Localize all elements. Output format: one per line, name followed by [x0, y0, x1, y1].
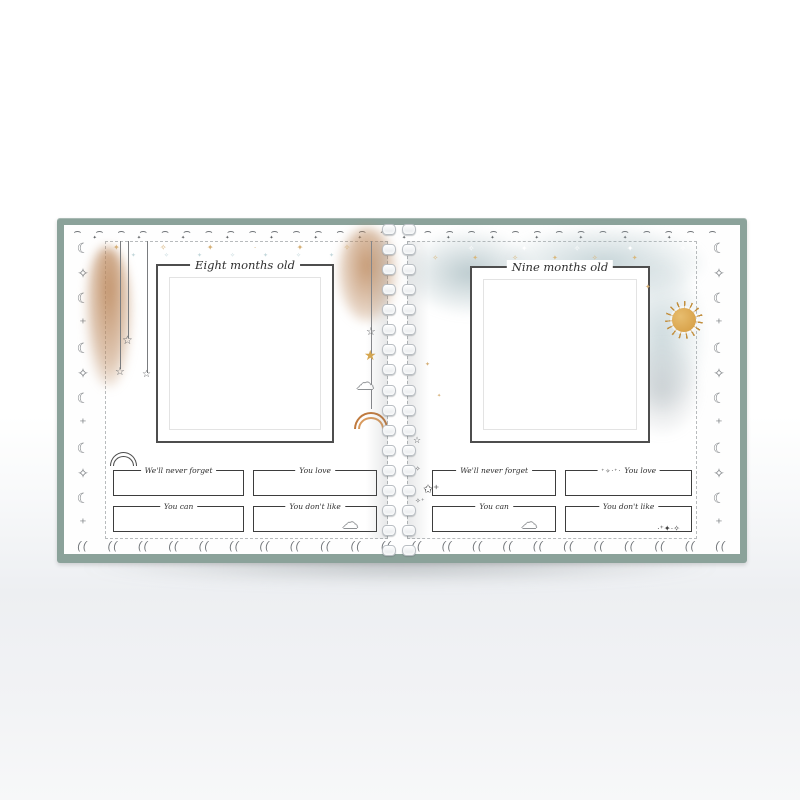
field-box-well-never-forget: We'll never forget — [113, 470, 244, 496]
field-label: You can — [475, 502, 513, 511]
hanging-string-icon — [120, 241, 121, 369]
photo-frame: Nine months old — [470, 266, 650, 443]
spiral-coil — [382, 284, 416, 295]
field-label: You don't like — [285, 502, 344, 511]
rainbow-doodle-icon — [110, 452, 137, 466]
spiral-coil — [382, 364, 416, 375]
field-box-you-dont-like: You don't like — [253, 506, 377, 532]
spiral-coil — [382, 485, 416, 496]
field-label: You don't like — [599, 502, 658, 511]
product-photo: ⌢⌢⌢⌢⌢⌢⌢⌢⌢⌢⌢⌢⌢⌢⌢⌢⌢⌢⌢⌢⌢⌢⌢⌢⌢⌢⌢⌢⌢⌢ ✦✦✦✦✦✦✦✦✦… — [0, 0, 800, 800]
hanging-string-icon — [147, 241, 148, 373]
field-label: ⁺✧·⁺·You love — [597, 466, 660, 476]
gold-star-icon: ✦ — [437, 393, 441, 399]
memory-fields: We'll never forget You love You can You … — [113, 470, 377, 532]
memory-fields: We'll never forget ⁺✧·⁺·You love You can… — [432, 470, 692, 532]
photo-placeholder — [169, 277, 321, 430]
field-box-you-love: ⁺✧·⁺·You love — [565, 470, 692, 496]
spiral-coil — [382, 505, 416, 516]
sun-icon — [665, 301, 703, 339]
baby-memory-book: ⌢⌢⌢⌢⌢⌢⌢⌢⌢⌢⌢⌢⌢⌢⌢⌢⌢⌢⌢⌢⌢⌢⌢⌢⌢⌢⌢⌢⌢⌢ ✦✦✦✦✦✦✦✦✦… — [57, 218, 747, 563]
moon-star-border-left-icon: ☾✧☾⁺☾✧☾⁺☾✧☾⁺☾ — [64, 241, 104, 538]
spiral-coil — [382, 324, 416, 335]
photo-frame: Eight months old — [156, 264, 334, 443]
moon-star-border-right-icon: ☾✧☾⁺☾✧☾⁺☾✧☾⁺☾ — [700, 241, 740, 538]
photo-placeholder — [483, 279, 637, 430]
spiral-coil — [382, 304, 416, 315]
field-box-you-dont-like: You don't like — [565, 506, 692, 532]
field-box-you-love: You love — [253, 470, 377, 496]
hanging-string-icon — [371, 241, 372, 409]
field-label: We'll never forget — [141, 466, 217, 475]
spiral-binding — [382, 223, 416, 557]
field-box-you-can: You can — [113, 506, 244, 532]
sparkle-icon: ✧⁺ — [415, 497, 425, 505]
spiral-coil — [382, 405, 416, 416]
sparkle-cluster-icon: ⁺✧·⁺· — [601, 468, 621, 475]
spiral-coil — [382, 264, 416, 275]
spiral-coil — [382, 344, 416, 355]
field-box-well-never-forget: We'll never forget — [432, 470, 556, 496]
gold-star-icon: ✦ — [425, 361, 430, 368]
page-title: Nine months old — [507, 260, 613, 274]
left-page: ✦ ✧ ✦ · ✦ ✧ ✦ · ✦ ✧ ✦✧✦✧✦✧✦ ☆ ☆ ☆ Eight … — [105, 241, 388, 539]
field-label: You love — [295, 466, 335, 475]
spiral-coil — [382, 525, 416, 536]
white-star-scatter-icon: ✦ ✧ ✦ ✧ ✦ ✧ ✦ — [415, 244, 689, 253]
spiral-coil — [382, 445, 416, 456]
spiral-coil — [382, 465, 416, 476]
spiral-coil — [382, 385, 416, 396]
spiral-coil — [382, 425, 416, 436]
right-page: ✦ ✧ ✦ ✧ ✦ ✧ ✦ ✧✦✧✦✧✦ Nine months old ✦ ✦… — [407, 241, 697, 539]
hanging-string-icon — [128, 241, 129, 338]
gold-star-scatter-icon: ✦ ✧ ✦ · ✦ ✧ ✦ · ✦ ✧ — [113, 243, 380, 252]
field-label: You can — [160, 502, 198, 511]
field-label-text: You love — [624, 466, 656, 475]
field-box-you-can: You can — [432, 506, 556, 532]
spiral-coil — [382, 244, 416, 255]
spiral-coil — [382, 545, 416, 556]
page-title: Eight months old — [190, 258, 300, 272]
field-label: We'll never forget — [456, 466, 532, 475]
spiral-coil — [382, 224, 416, 235]
